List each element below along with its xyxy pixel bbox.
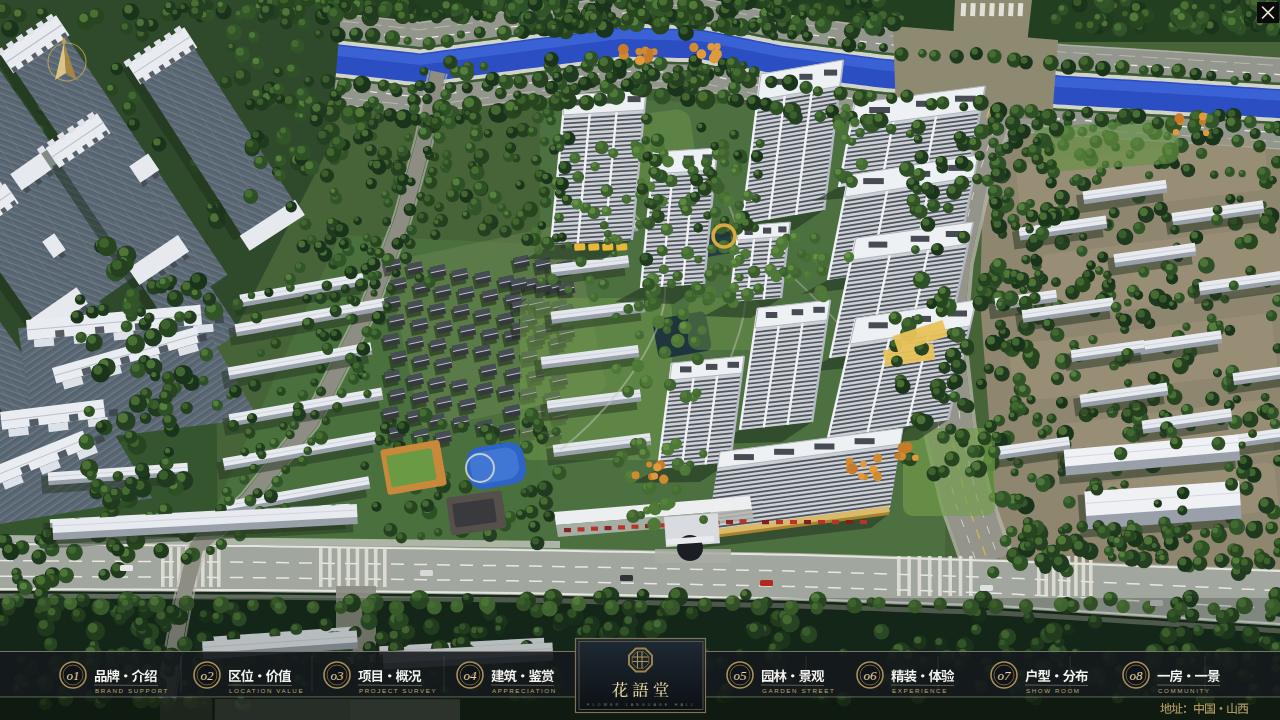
svg-text:PROJECT SURVEY: PROJECT SURVEY [359,687,437,694]
svg-text:o6: o6 [864,668,878,683]
svg-text:F L O W E R · L A N G U A G E: F L O W E R · L A N G U A G E · H A L L [587,703,694,707]
svg-text:EXPERIENCE: EXPERIENCE [892,687,948,694]
svg-text:o2: o2 [201,668,215,683]
svg-text:BRAND SUPPORT: BRAND SUPPORT [95,687,169,694]
svg-text:o7: o7 [998,668,1012,683]
svg-text:APPRECIATION: APPRECIATION [492,687,557,694]
svg-text:COMMUNITY: COMMUNITY [1158,687,1211,694]
svg-text:o4: o4 [464,668,478,683]
svg-text:o8: o8 [1130,668,1144,683]
svg-text:o3: o3 [331,668,345,683]
svg-text:LOCATION VALUE: LOCATION VALUE [229,687,304,694]
svg-text:GARDEN STREET: GARDEN STREET [762,687,835,694]
svg-text:o1: o1 [67,668,80,683]
svg-text:o5: o5 [734,668,748,683]
svg-text:SHOW ROOM: SHOW ROOM [1026,687,1081,694]
